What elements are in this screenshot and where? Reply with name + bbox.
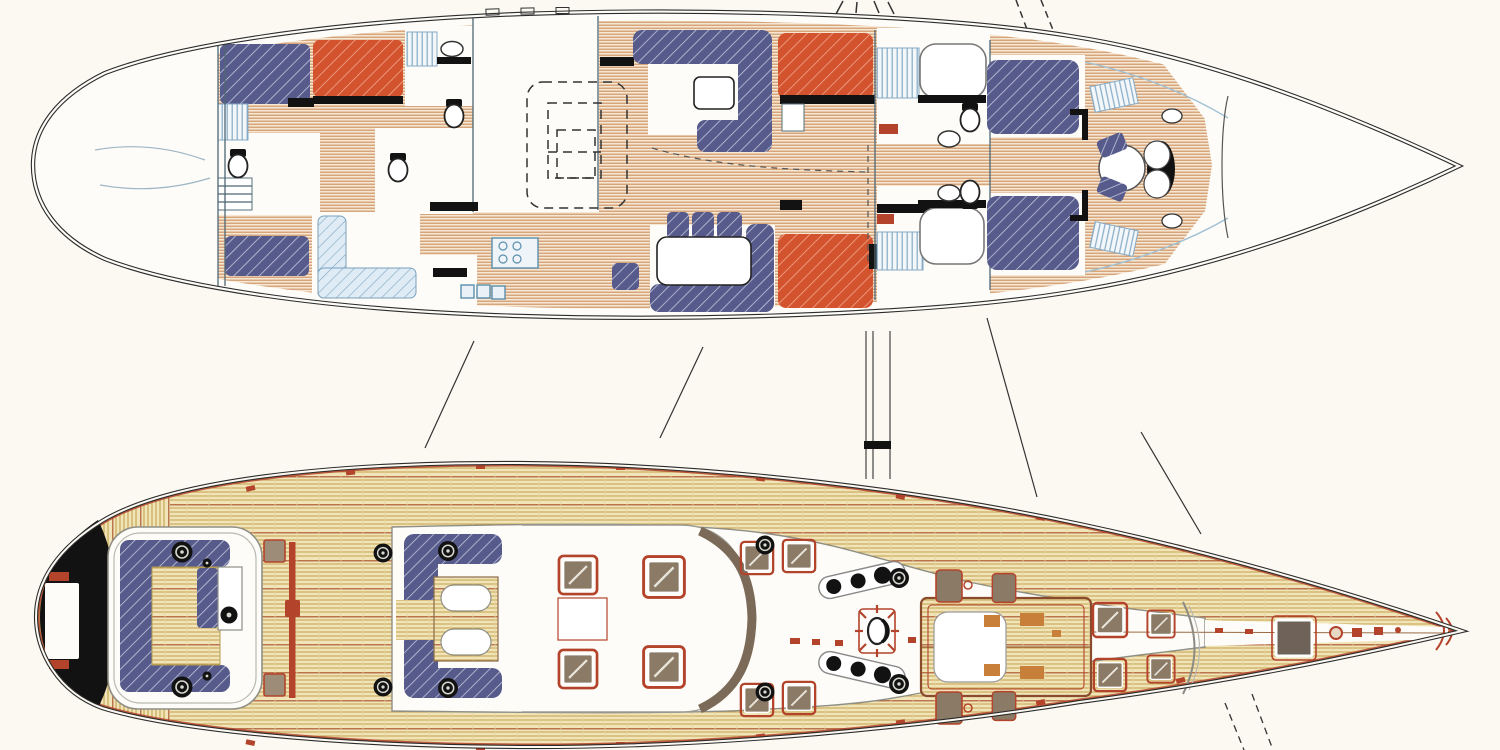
interior-accommodation-plan (20, 8, 1470, 318)
mizzen-mast-step (285, 600, 300, 617)
berth-navy-aft-lower (225, 236, 309, 276)
twin-seat-lower (1144, 170, 1170, 198)
skylight-2 (644, 557, 685, 598)
salon-table-lower (657, 237, 751, 285)
teak-deck-plan (30, 455, 1470, 750)
wc-mid (389, 153, 408, 182)
wc-aft (229, 149, 248, 178)
skylight-4 (644, 647, 685, 688)
locker-shelves (218, 104, 248, 140)
windlass (1330, 627, 1342, 639)
twin-seat-upper (1144, 141, 1170, 169)
berth-navy-fwd-lower (987, 196, 1079, 270)
wc-wardrobe (445, 99, 464, 128)
main-mast (855, 605, 899, 657)
stern-transom-dark (40, 520, 117, 708)
yacht-plans-sheet (0, 0, 1500, 750)
skylight-1 (559, 556, 597, 594)
berth-pod-lower (920, 208, 984, 264)
mizzen-traveller (289, 542, 296, 698)
mast-spar-lines (866, 331, 890, 479)
berth-red-lower (778, 234, 873, 308)
basin (441, 42, 463, 57)
galley-sinks (461, 285, 505, 299)
bow-hatch (1276, 620, 1312, 656)
transom-locker (45, 583, 79, 659)
helm-seat (197, 568, 218, 628)
yacht-plans-drawing (0, 0, 1500, 750)
cockpit-seat-aft-fwd (120, 540, 152, 692)
berth-navy-aft-port (220, 44, 310, 104)
berth-red-upper (778, 33, 873, 99)
berth-navy-fwd-upper (987, 60, 1079, 134)
companionway-bridge (396, 600, 438, 640)
mast-spar-band (864, 441, 891, 449)
aft-cockpit (108, 527, 262, 709)
roof-panel (558, 598, 607, 640)
berth-pod-upper (920, 44, 986, 98)
companionway-steps (218, 178, 252, 210)
coachroof (522, 525, 753, 712)
berth-red-aft-port (313, 40, 403, 97)
center-cockpit (396, 534, 502, 698)
salon-table-upper (694, 77, 734, 109)
skylight-3 (559, 650, 597, 688)
